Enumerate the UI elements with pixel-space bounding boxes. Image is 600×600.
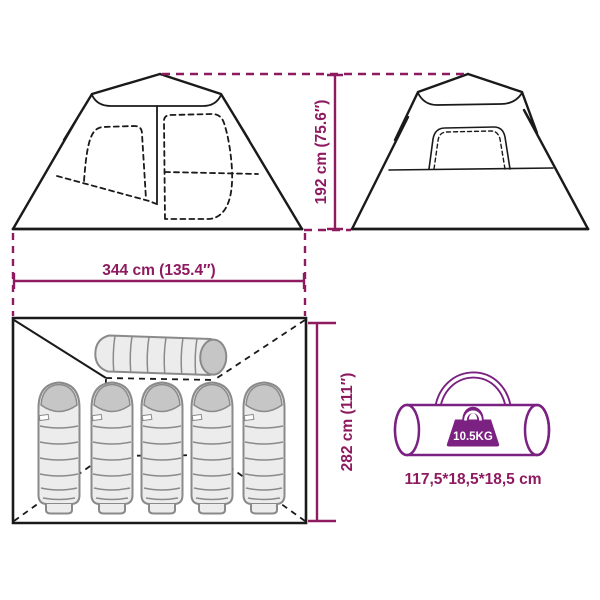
floor-plan-diagonal-solid — [14, 320, 106, 378]
floor-plan — [13, 318, 306, 523]
tent-front-groundsheet-line — [57, 176, 159, 205]
tent-side-view — [352, 74, 588, 229]
tent-front-door — [164, 114, 232, 219]
rolled-sleeping-mat — [95, 335, 227, 376]
dimension-lines — [13, 74, 466, 521]
tent-side-eave-line — [418, 93, 522, 105]
tent-front-view — [13, 74, 302, 229]
carry-bag-size-label: 117,5*18,5*18,5 cm — [404, 471, 541, 488]
width-dimension-label: 344 cm (135.4″) — [102, 262, 215, 279]
sleeping-bag — [192, 383, 233, 514]
tent-front-eave-line — [92, 95, 221, 106]
sleeping-bag — [244, 383, 285, 514]
tent-front-roof-right — [160, 74, 302, 229]
tent-side-roof-left — [352, 74, 468, 229]
tent-side-window-inner — [434, 131, 505, 169]
tent-front-window — [84, 126, 146, 199]
tent-side-roof-right — [468, 74, 588, 229]
tent-side-wall-line — [389, 168, 553, 170]
sleeping-bag — [39, 383, 80, 514]
carry-bag-weight-label: 10.5KG — [453, 431, 493, 443]
product-dimension-diagram: 192 cm (75.6″) 344 cm (135.4″) 282 cm (1… — [0, 0, 600, 600]
floor-plan-diagonal-tr — [214, 320, 305, 380]
sleeping-bag — [142, 383, 183, 514]
height-dimension-label: 192 cm (75.6″) — [313, 100, 330, 205]
carry-bag-left-end — [395, 405, 419, 455]
carry-bag: 10.5KG 117,5*18,5*18,5 cm — [395, 375, 549, 488]
sleeping-bag — [92, 383, 133, 514]
depth-dimension-line — [308, 323, 336, 521]
depth-dimension-label: 282 cm (111″) — [339, 373, 356, 472]
tent-front-door-zip-line — [165, 172, 258, 174]
